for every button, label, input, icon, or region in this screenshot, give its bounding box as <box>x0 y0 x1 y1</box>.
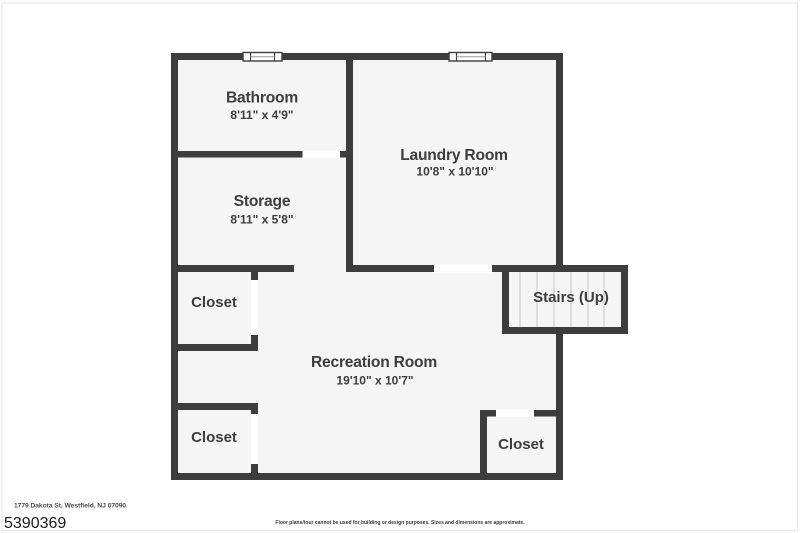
svg-text:8'11" x 4'9": 8'11" x 4'9" <box>230 108 293 122</box>
svg-text:Bathroom: Bathroom <box>226 90 298 107</box>
svg-text:1779 Dakota St, Westfield, NJ: 1779 Dakota St, Westfield, NJ 07090 <box>14 503 126 510</box>
svg-text:10'8" x 10'10": 10'8" x 10'10" <box>416 165 493 179</box>
svg-text:Laundry Room: Laundry Room <box>400 147 508 164</box>
svg-text:Closet: Closet <box>498 436 544 453</box>
svg-text:5390369: 5390369 <box>4 515 66 532</box>
svg-text:Storage: Storage <box>234 193 291 210</box>
svg-text:Stairs (Up): Stairs (Up) <box>533 289 609 306</box>
svg-text:Closet: Closet <box>191 429 237 446</box>
svg-text:Recreation Room: Recreation Room <box>311 354 437 371</box>
svg-text:19'10" x 10'7": 19'10" x 10'7" <box>336 374 413 388</box>
svg-text:Floor plans/tour cannot be use: Floor plans/tour cannot be used for buil… <box>275 520 525 526</box>
svg-text:8'11" x 5'8": 8'11" x 5'8" <box>230 213 293 227</box>
svg-text:Closet: Closet <box>191 294 237 311</box>
